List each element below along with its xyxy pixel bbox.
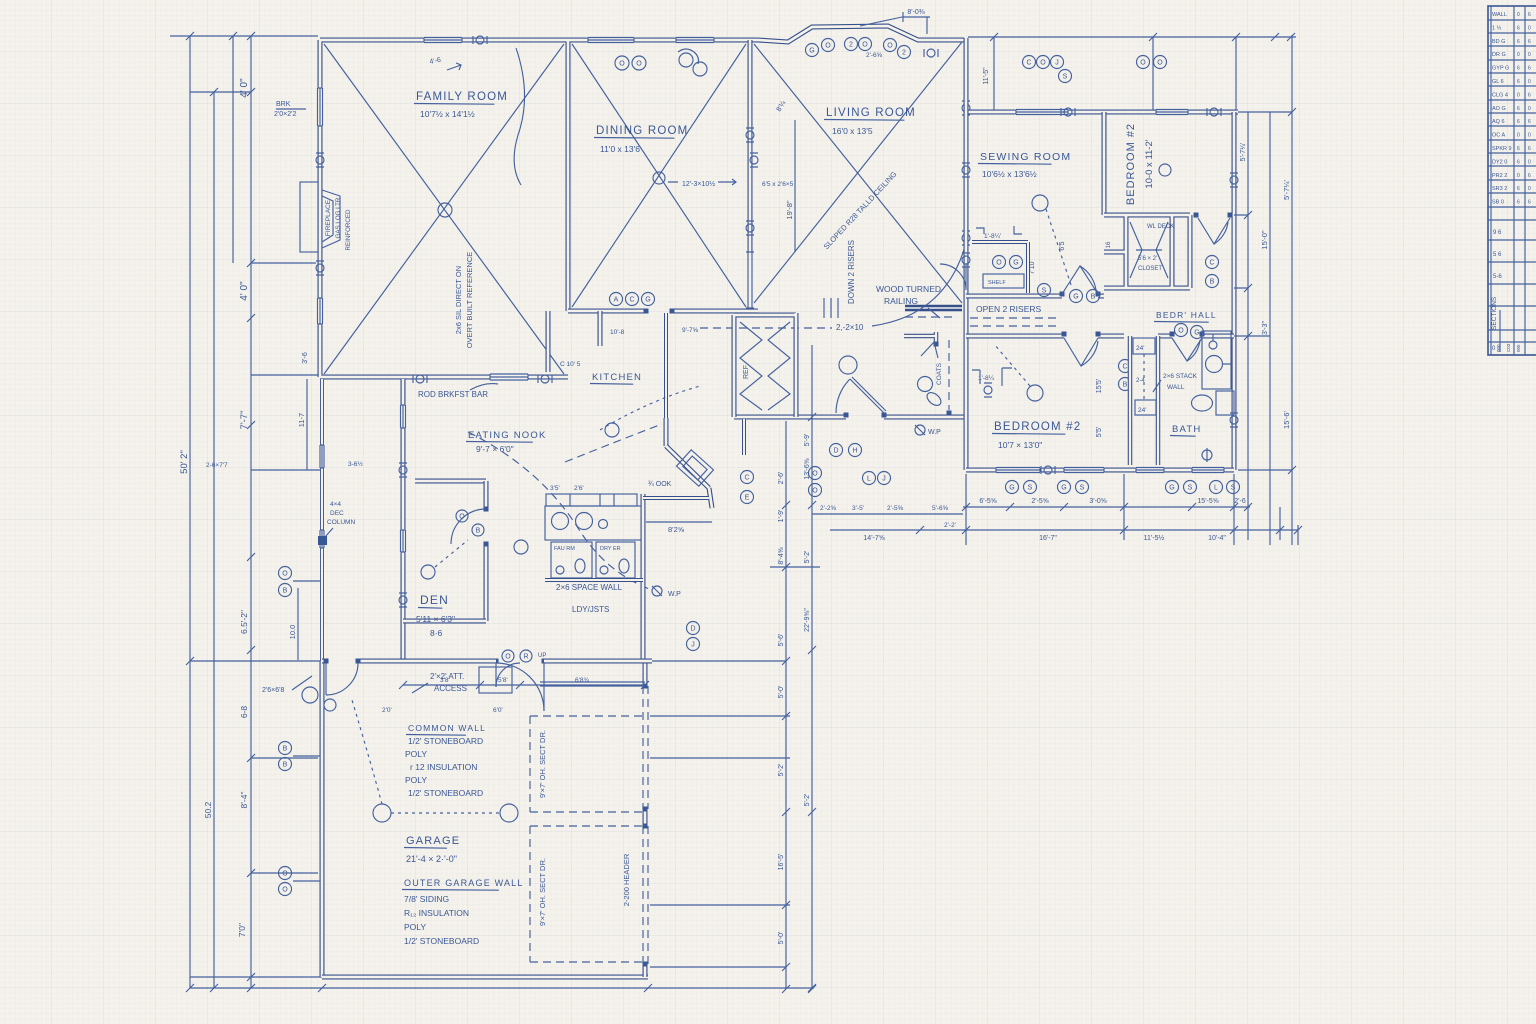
svg-text:6'5 x 2'6×5: 6'5 x 2'6×5: [762, 181, 794, 188]
svg-text:L: L: [867, 475, 871, 482]
svg-text:G: G: [645, 296, 650, 303]
svg-text:6: 6: [1528, 146, 1531, 152]
svg-text:9'-7⅝: 9'-7⅝: [682, 327, 699, 334]
svg-text:4' 0": 4' 0": [239, 281, 250, 301]
svg-text:C: C: [629, 296, 634, 303]
svg-text:0: 0: [1517, 52, 1520, 58]
svg-text:G: G: [1169, 484, 1174, 491]
svg-text:B: B: [283, 761, 288, 768]
svg-text:O: O: [1178, 327, 1184, 334]
svg-text:GARAGE: GARAGE: [406, 835, 460, 847]
svg-text:EATING NOOK: EATING NOOK: [468, 430, 546, 441]
svg-text:7'0": 7'0": [237, 923, 247, 937]
svg-text:0: 0: [1517, 12, 1520, 18]
svg-text:1 ⅓: 1 ⅓: [1492, 25, 1502, 31]
svg-text:005: 005: [1516, 344, 1521, 352]
svg-text:G: G: [1073, 293, 1078, 300]
svg-text:FAMILY ROOM: FAMILY ROOM: [416, 91, 508, 103]
svg-text:7'-7": 7'-7": [239, 411, 250, 430]
svg-text:2'6': 2'6': [574, 485, 584, 492]
svg-text:6: 6: [1517, 39, 1520, 45]
svg-text:O: O: [1157, 59, 1163, 66]
svg-text:BATH: BATH: [1172, 424, 1201, 435]
svg-text:DOWN 2 RISERS: DOWN 2 RISERS: [847, 240, 856, 304]
svg-text:5'-2': 5'-2': [804, 551, 811, 564]
svg-text:2'-5⅝: 2'-5⅝: [1031, 498, 1048, 505]
svg-text:O: O: [282, 570, 288, 577]
svg-text:1/2' STONEBOARD: 1/2' STONEBOARD: [404, 936, 479, 946]
svg-text:0: 0: [1528, 133, 1531, 139]
svg-text:O: O: [812, 470, 818, 477]
svg-text:LDY/JSTS: LDY/JSTS: [572, 605, 609, 614]
svg-text:O: O: [996, 259, 1002, 266]
svg-text:A: A: [614, 296, 619, 303]
svg-text:0: 0: [1517, 133, 1520, 139]
svg-text:3'8': 3'8': [440, 677, 450, 684]
svg-text:W.P: W.P: [928, 429, 941, 436]
svg-text:D: D: [690, 625, 695, 632]
svg-text:6'8¾: 6'8¾: [575, 677, 589, 684]
svg-text:B: B: [1091, 293, 1096, 300]
svg-text:WALL: WALL: [1492, 12, 1507, 18]
svg-text:6: 6: [1517, 66, 1520, 72]
svg-text:5'-0': 5'-0': [778, 932, 785, 945]
svg-text:E: E: [745, 494, 750, 501]
svg-text:O: O: [812, 487, 818, 494]
svg-text:10'-8: 10'-8: [610, 329, 625, 336]
svg-text:16'0 x 13'5: 16'0 x 13'5: [832, 126, 873, 136]
svg-text:3'-3": 3'-3": [1262, 321, 1269, 335]
svg-text:0: 0: [1517, 173, 1520, 179]
svg-text:LIVING ROOM: LIVING ROOM: [826, 107, 916, 119]
svg-text:C: C: [1209, 259, 1214, 266]
svg-text:GL 6: GL 6: [1492, 79, 1504, 85]
svg-text:6: 6: [1528, 12, 1531, 18]
svg-text:B: B: [1123, 381, 1128, 388]
svg-text:0: 0: [1528, 52, 1531, 58]
svg-text:POLY: POLY: [405, 775, 427, 785]
svg-text:6: 6: [1528, 66, 1531, 72]
svg-text:6: 6: [1517, 200, 1520, 206]
svg-text:OUTER GARAGE WALL: OUTER GARAGE WALL: [404, 878, 524, 888]
svg-text:DR G: DR G: [1492, 52, 1506, 58]
svg-text:12'-3×10½: 12'-3×10½: [682, 180, 715, 188]
svg-text:9 6: 9 6: [1493, 230, 1502, 236]
svg-text:5'-7¼': 5'-7¼': [1282, 179, 1291, 200]
svg-text:10'-4": 10'-4": [1208, 535, 1226, 542]
svg-text:2: 2: [902, 49, 906, 56]
svg-text:8'-4⅝: 8'-4⅝: [778, 547, 785, 564]
svg-text:000: 000: [1496, 344, 1501, 352]
svg-text:2-4: 2-4: [1136, 378, 1145, 384]
svg-text:3'-6: 3'-6: [302, 352, 309, 364]
svg-text:11-7: 11-7: [297, 413, 306, 427]
svg-text:0: 0: [1528, 79, 1531, 85]
svg-text:L: L: [1214, 484, 1218, 491]
svg-text:O: O: [282, 870, 288, 877]
svg-text:5'-0': 5'-0': [778, 686, 785, 699]
svg-text:G: G: [1009, 484, 1014, 491]
svg-text:2'-5⅝: 2'-5⅝: [887, 505, 904, 512]
svg-text:13'-6⅝: 13'-6⅝: [804, 458, 811, 479]
svg-text:6: 6: [1517, 159, 1520, 165]
svg-text:2×6 SPACE WALL: 2×6 SPACE WALL: [556, 583, 623, 592]
svg-text:SPKR 9: SPKR 9: [1492, 146, 1512, 152]
svg-text:5'-6⅝: 5'-6⅝: [932, 505, 949, 512]
svg-text:O: O: [1140, 59, 1146, 66]
svg-text:GYP G: GYP G: [1492, 66, 1509, 72]
svg-text:8'-0⅜: 8'-0⅜: [907, 9, 924, 16]
svg-text:S: S: [1042, 287, 1047, 294]
svg-text:CLOSET: CLOSET: [1138, 266, 1162, 272]
svg-text:6: 6: [1517, 25, 1520, 31]
svg-text:6'0': 6'0': [493, 707, 503, 714]
svg-text:10'7 × 13'0": 10'7 × 13'0": [998, 440, 1042, 450]
svg-text:7'10: 7'10: [1029, 261, 1036, 274]
svg-text:KITCHEN: KITCHEN: [592, 372, 642, 383]
svg-text:G: G: [1061, 484, 1066, 491]
svg-text:6-8: 6-8: [239, 706, 249, 719]
svg-text:D: D: [833, 447, 838, 454]
svg-text:B: B: [283, 587, 288, 594]
svg-text:BEDR' HALL: BEDR' HALL: [1156, 310, 1217, 320]
svg-text:OVERT BUILT REFERENCE: OVERT BUILT REFERENCE: [465, 252, 474, 349]
svg-text:4×4: 4×4: [330, 501, 341, 508]
svg-text:COMMON WALL: COMMON WALL: [408, 723, 486, 733]
svg-text:SHELF: SHELF: [988, 280, 1006, 286]
svg-text:1/2' STONEBOARD: 1/2' STONEBOARD: [408, 788, 483, 798]
svg-text:3-6½: 3-6½: [348, 460, 363, 468]
svg-text:S: S: [1063, 73, 1068, 80]
svg-text:WOOD TURNED: WOOD TURNED: [876, 284, 941, 294]
svg-text:8'2⅝: 8'2⅝: [668, 525, 685, 534]
svg-text:15'-6': 15'-6': [1282, 410, 1291, 428]
svg-text:J: J: [882, 475, 886, 482]
svg-text:H: H: [852, 447, 857, 454]
svg-text:r 12 INSULATION: r 12 INSULATION: [410, 762, 477, 772]
svg-text:15'5': 15'5': [1096, 379, 1103, 393]
svg-text:3'-5': 3'-5': [852, 505, 864, 512]
svg-text:2: 2: [849, 41, 853, 48]
svg-text:BD G: BD G: [1492, 39, 1505, 45]
svg-text:B: B: [476, 527, 481, 534]
svg-text:C: C: [744, 474, 749, 481]
svg-text:10.0: 10.0: [288, 625, 297, 640]
svg-text:SEWING ROOM: SEWING ROOM: [980, 151, 1071, 163]
svg-text:C: C: [1026, 59, 1031, 66]
svg-text:WL DECK: WL DECK: [1147, 224, 1174, 230]
svg-text:B: B: [1210, 278, 1215, 285]
svg-text:C: C: [1122, 363, 1127, 370]
svg-text:6: 6: [1528, 119, 1531, 125]
svg-text:SB 0: SB 0: [1492, 200, 1504, 206]
svg-text:2'-6⅝: 2'-6⅝: [866, 52, 883, 59]
svg-text:10'6½ x 13'6½: 10'6½ x 13'6½: [982, 169, 1037, 179]
svg-text:2×6 STACK: 2×6 STACK: [1163, 373, 1198, 380]
svg-text:S: S: [1080, 484, 1085, 491]
svg-text:0: 0: [1517, 92, 1520, 98]
svg-text:REF: REF: [743, 365, 750, 379]
svg-text:2,-2×10: 2,-2×10: [836, 323, 864, 332]
svg-text:5'-2': 5'-2': [804, 794, 811, 807]
svg-text:ROD BRKFST BAR: ROD BRKFST BAR: [418, 390, 488, 399]
svg-text:SECTIONS: SECTIONS: [1491, 296, 1498, 330]
svg-text:2'-2⅝: 2'-2⅝: [820, 505, 837, 512]
svg-text:PR2 2: PR2 2: [1492, 173, 1507, 179]
svg-text:UP: UP: [538, 653, 546, 659]
svg-text:5'-9': 5'-9': [804, 434, 811, 447]
svg-text:2'0': 2'0': [382, 707, 392, 714]
svg-text:G: G: [1013, 259, 1018, 266]
svg-text:6: 6: [1528, 173, 1531, 179]
svg-text:2'-2': 2'-2': [944, 522, 956, 529]
svg-text:GAS LOG LTR: GAS LOG LTR: [335, 197, 342, 238]
svg-text:16'-5': 16'-5': [778, 854, 785, 871]
svg-text:24': 24': [1136, 345, 1144, 352]
svg-text:G: G: [809, 47, 814, 54]
svg-text:BEDROOM #2: BEDROOM #2: [1125, 123, 1137, 205]
svg-text:WALL: WALL: [1167, 384, 1185, 391]
svg-text:6: 6: [1528, 92, 1531, 98]
svg-text:POLY: POLY: [405, 749, 427, 759]
svg-text:OPEN 2 RISERS: OPEN 2 RISERS: [976, 304, 1042, 314]
svg-text:6: 6: [1517, 119, 1520, 125]
svg-text:¾ OOK: ¾ OOK: [648, 481, 672, 488]
svg-text:BEDROOM #2: BEDROOM #2: [994, 421, 1081, 433]
svg-text:AQ 6: AQ 6: [1492, 119, 1505, 125]
svg-text:O: O: [459, 513, 465, 520]
svg-text:J: J: [691, 641, 695, 648]
svg-text:50' 2": 50' 2": [179, 450, 190, 474]
svg-text:7/8' SIDING: 7/8' SIDING: [404, 894, 449, 904]
svg-text:6: 6: [1528, 39, 1531, 45]
svg-text:19'-8": 19'-8": [785, 200, 794, 219]
svg-text:O: O: [1040, 59, 1046, 66]
svg-text:COATS: COATS: [936, 362, 943, 385]
svg-text:O: O: [505, 653, 511, 660]
svg-text:2-200 HEADER: 2-200 HEADER: [622, 853, 631, 906]
svg-text:5'-7¼': 5'-7¼': [1240, 143, 1247, 162]
svg-text:O: O: [862, 41, 868, 48]
svg-text:FAU RM: FAU RM: [554, 546, 575, 552]
svg-text:4' 0": 4' 0": [239, 78, 250, 98]
svg-text:C 10' 5: C 10' 5: [560, 361, 581, 368]
svg-text:O: O: [282, 886, 288, 893]
svg-text:DEC: DEC: [330, 510, 344, 517]
svg-text:W.P: W.P: [668, 591, 681, 598]
svg-text:REINFORCED: REINFORCED: [345, 209, 352, 250]
svg-text:OC A: OC A: [1492, 133, 1505, 139]
svg-text:6'5: 6'5: [1059, 241, 1066, 250]
svg-text:O: O: [887, 42, 893, 49]
svg-text:1'-8¼': 1'-8¼': [984, 233, 1001, 240]
svg-text:POLY: POLY: [404, 922, 426, 932]
svg-text:O: O: [825, 42, 831, 49]
svg-text:5'-2': 5'-2': [778, 764, 785, 777]
svg-text:DY2 0: DY2 0: [1492, 159, 1507, 165]
svg-text:5'-6': 5'-6': [778, 634, 785, 647]
svg-text:G: G: [1194, 329, 1199, 336]
svg-text:21'-4 × 2·'-0": 21'-4 × 2·'-0": [406, 854, 457, 864]
svg-text:2'6×6'8: 2'6×6'8: [262, 687, 284, 694]
svg-text:5'8': 5'8': [498, 677, 508, 684]
svg-text:R₁₂ INSULATION: R₁₂ INSULATION: [404, 908, 469, 918]
svg-text:2'-6': 2'-6': [778, 472, 785, 485]
svg-text:8·6: 8·6: [430, 628, 443, 638]
svg-text:16'-7": 16'-7": [1039, 535, 1057, 542]
svg-text:2'0×2'2: 2'0×2'2: [274, 111, 296, 118]
svg-text:5'5': 5'5': [1096, 427, 1103, 437]
svg-text:C03: C03: [1506, 343, 1511, 352]
svg-text:11'-5": 11'-5": [983, 67, 990, 85]
svg-text:3'5': 3'5': [550, 485, 560, 492]
svg-text:5-6: 5-6: [1493, 274, 1502, 280]
svg-text:15'-0": 15'-0": [1260, 230, 1269, 249]
svg-text:3'-0⅝: 3'-0⅝: [1089, 498, 1106, 505]
svg-text:5 6: 5 6: [1493, 252, 1502, 258]
svg-text:FIREPLACE: FIREPLACE: [325, 199, 332, 236]
svg-text:11'-5½: 11'-5½: [1144, 534, 1165, 542]
svg-text:14'-7⅝: 14'-7⅝: [863, 535, 884, 542]
svg-text:O: O: [636, 60, 642, 67]
svg-text:COLUMN: COLUMN: [327, 519, 355, 526]
svg-text:6: 6: [1517, 79, 1520, 85]
svg-text:S: S: [1231, 484, 1236, 491]
svg-text:9'×7' OH. SECT DR.: 9'×7' OH. SECT DR.: [538, 858, 547, 926]
svg-text:2x6 SIL DIRECT ON: 2x6 SIL DIRECT ON: [454, 266, 463, 334]
svg-text:9'×7' OH. SECT DR.: 9'×7' OH. SECT DR.: [538, 730, 547, 798]
svg-text:5'6 × 2': 5'6 × 2': [1138, 256, 1157, 262]
svg-text:B: B: [283, 745, 288, 752]
svg-text:DINING ROOM: DINING ROOM: [596, 125, 688, 137]
svg-text:6: 6: [1528, 200, 1531, 206]
svg-text:22'-9⅝": 22'-9⅝": [804, 608, 811, 632]
svg-text:1/2' STONEBOARD: 1/2' STONEBOARD: [408, 736, 483, 746]
svg-text:6: 6: [1517, 186, 1520, 192]
svg-text:J: J: [1055, 59, 1059, 66]
svg-text:10'7½ x 14'1½: 10'7½ x 14'1½: [420, 109, 475, 119]
svg-text:11'0 x 13'6: 11'0 x 13'6: [600, 144, 640, 154]
svg-text:AO G: AO G: [1492, 106, 1506, 112]
svg-text:6'-5⅝: 6'-5⅝: [979, 498, 996, 505]
svg-text:0: 0: [1528, 159, 1531, 165]
svg-text:O: O: [619, 60, 625, 67]
svg-text:9'-7 × 6'0": 9'-7 × 6'0": [476, 444, 514, 454]
svg-text:2-6×7'7: 2-6×7'7: [206, 462, 228, 469]
svg-text:0: 0: [1528, 106, 1531, 112]
svg-text:1'-9': 1'-9': [778, 510, 785, 523]
svg-text:RAILING: RAILING: [884, 296, 918, 306]
svg-text:6: 6: [1517, 146, 1520, 152]
svg-text:16: 16: [1106, 241, 1112, 248]
svg-text:SR3 2: SR3 2: [1492, 186, 1507, 192]
svg-text:DEN: DEN: [420, 593, 449, 607]
svg-text:2'-6: 2'-6: [1234, 498, 1246, 505]
svg-text:15'-5⅝: 15'-5⅝: [1197, 498, 1218, 505]
svg-text:5'11 × 6'3": 5'11 × 6'3": [416, 614, 455, 624]
svg-text:6.5'-2": 6.5'-2": [239, 610, 249, 634]
svg-text:50.2: 50.2: [203, 801, 213, 818]
svg-text:0: 0: [1528, 25, 1531, 31]
svg-text:0: 0: [1528, 186, 1531, 192]
svg-text:24': 24': [1138, 407, 1146, 414]
svg-text:S: S: [1028, 484, 1033, 491]
svg-text:10-0 x 11-2': 10-0 x 11-2': [1144, 139, 1155, 188]
svg-text:BRK: BRK: [276, 101, 291, 108]
svg-text:R: R: [523, 653, 528, 660]
svg-text:S: S: [1188, 484, 1193, 491]
svg-text:CLG 4: CLG 4: [1492, 92, 1508, 98]
svg-text:DRY ER: DRY ER: [600, 546, 621, 552]
svg-text:8'-4": 8'-4": [239, 792, 249, 809]
svg-text:6: 6: [1517, 106, 1520, 112]
